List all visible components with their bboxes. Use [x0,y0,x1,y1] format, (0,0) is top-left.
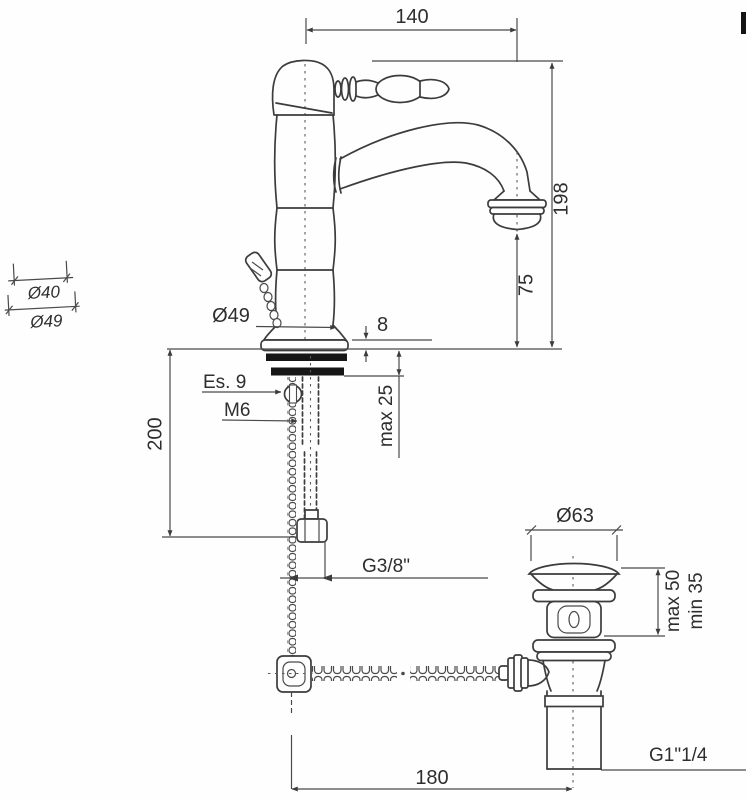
hose-nut-g38 [297,519,327,542]
label-hex-size: Es. 9 [202,372,281,393]
waste-funnel [531,574,617,590]
technical-drawing-page: 140 198 75 Ø49 8 Es. 9 M6 max 25 [0,0,749,800]
dim-max-mounting-label: max 25 [376,385,397,447]
faucet-body [244,60,546,350]
gasket-upper [266,354,347,362]
waste-ring-upper [533,590,615,602]
dim-total-height-label: 198 [550,182,572,215]
dim-horizontal-span-label: 180 [415,767,448,789]
pull-rod-chain [287,377,296,658]
gasket-lower [271,368,344,376]
waste-ring-thin [537,652,611,661]
dim-waste-min-label: min 35 [686,572,707,629]
label-stud-thread-text: M6 [224,400,250,421]
mounting-deck [167,349,562,658]
horizontal-rod-right [410,666,505,681]
threaded-shank-and-hose [297,356,327,542]
column-right-edge [333,115,335,325]
waste-ring-lower [533,640,615,652]
hose-collar [305,510,318,519]
dim-waste-flange-label: Ø63 [556,505,594,527]
rosette-detail-sketch: Ø40 Ø49 [2,260,81,333]
faucet-head-dome [273,60,334,115]
label-stud-thread: M6 [222,400,297,421]
rosette-inner-diameter-label: Ø40 [26,282,61,303]
dim-waste-depth: max 50 min 35 [604,568,707,636]
dim-waste-max-label: max 50 [663,570,684,632]
waste-tailpiece [545,691,603,769]
lever-handle [335,76,449,103]
popup-linkage [268,656,505,716]
dim-spout-reach-label: 140 [395,6,428,28]
dim-hose-length-label: 200 [144,417,166,450]
waste-cone [543,661,605,692]
dim-outlet-height-label: 75 [515,274,537,296]
label-waste-thread-text: G1"1/4 [649,745,708,766]
dim-escutcheon-height: 8 [352,314,432,362]
label-hose-thread: G3/8" [280,542,488,582]
head-joint-slant [276,103,332,113]
label-waste-thread: G1"1/4 [601,745,746,770]
dim-max-mounting: max 25 [344,351,404,458]
horizontal-rod-left [312,666,397,681]
es9-clip [285,385,302,403]
dim-outlet-height: 75 [515,234,537,347]
label-hose-thread-text: G3/8" [362,556,410,577]
page-crop-mark [741,12,746,34]
waste-plug-cap [529,564,619,575]
rosette-outer-diameter-label: Ø49 [29,311,64,332]
label-hex-size-text: Es. 9 [203,372,246,393]
dim-escutcheon-diameter-label: Ø49 [212,305,250,327]
dim-horizontal-span: 180 [292,735,573,789]
dim-waste-flange: Ø63 [525,505,623,561]
dim-escutcheon-height-label: 8 [377,314,388,336]
spout-joint-ring-2 [339,157,341,193]
column-left-edge [275,115,277,325]
swan-spout [340,123,546,240]
faucet-dimension-drawing: 140 198 75 Ø49 8 Es. 9 M6 max 25 [0,0,749,800]
dim-spout-reach: 140 [306,6,517,62]
popup-waste-assembly [499,556,619,788]
